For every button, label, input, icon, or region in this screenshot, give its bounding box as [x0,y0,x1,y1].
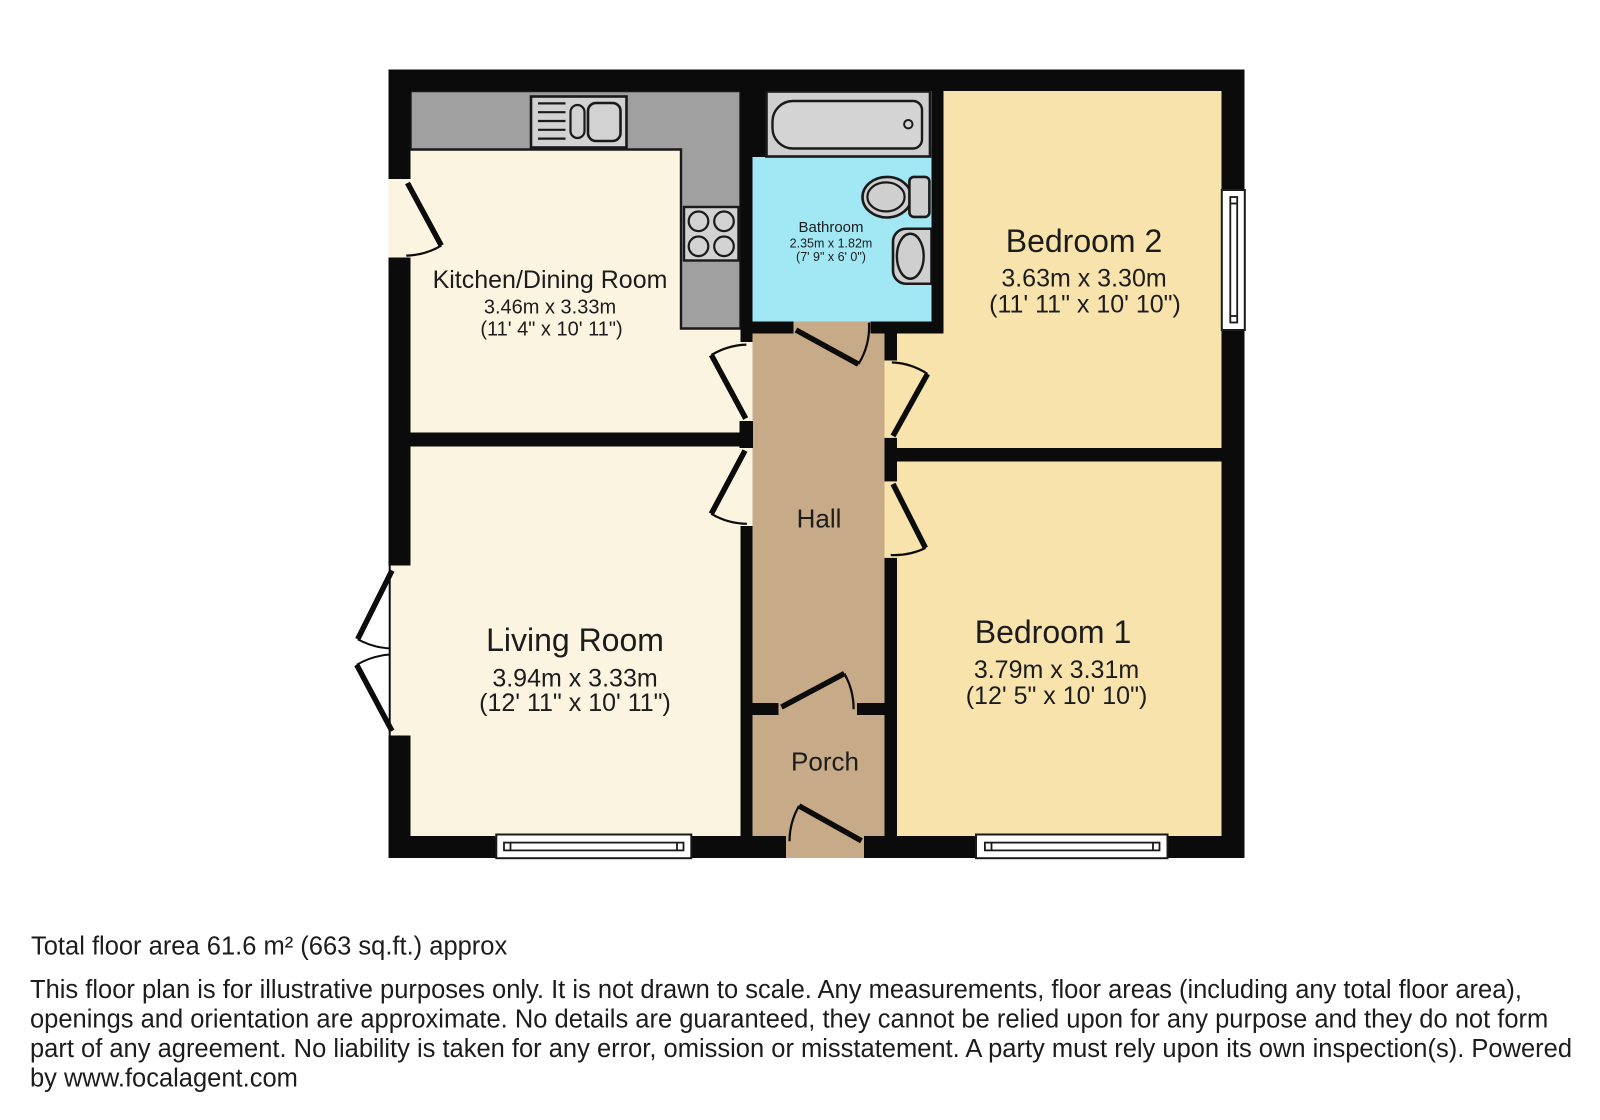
svg-text:(12' 11" x 10' 11"): (12' 11" x 10' 11") [479,689,671,717]
svg-text:3.63m x 3.30m: 3.63m x 3.30m [1001,265,1166,293]
svg-text:openings and orientation are a: openings and orientation are approximate… [30,1006,1548,1034]
svg-text:Bedroom 1: Bedroom 1 [975,614,1132,650]
svg-text:(7' 9" x 6' 0"): (7' 9" x 6' 0") [796,250,866,264]
svg-text:Kitchen/Dining Room: Kitchen/Dining Room [433,266,668,294]
svg-text:(11' 4" x 10' 11"): (11' 4" x 10' 11") [480,319,622,341]
svg-text:2.35m x 1.82m: 2.35m x 1.82m [790,237,873,251]
svg-text:Bedroom 2: Bedroom 2 [1006,223,1163,259]
svg-text:part of any agreement. No liab: part of any agreement. No liability is t… [30,1035,1572,1063]
svg-text:Hall: Hall [797,504,842,534]
svg-text:Porch: Porch [791,747,859,777]
svg-text:Bathroom: Bathroom [798,219,863,236]
svg-text:Living Room: Living Room [486,622,664,658]
svg-text:(11' 11" x 10' 10"): (11' 11" x 10' 10") [989,291,1181,319]
svg-text:Total floor area 61.6 m² (663: Total floor area 61.6 m² (663 sq.ft.) ap… [31,933,507,961]
svg-text:3.79m x 3.31m: 3.79m x 3.31m [974,656,1139,684]
svg-text:This floor plan is for illustr: This floor plan is for illustrative purp… [30,976,1522,1004]
svg-text:3.46m x 3.33m: 3.46m x 3.33m [484,297,616,319]
svg-text:by www.focalagent.com: by www.focalagent.com [30,1065,298,1093]
svg-text:(12' 5" x 10' 10"): (12' 5" x 10' 10") [966,682,1148,710]
